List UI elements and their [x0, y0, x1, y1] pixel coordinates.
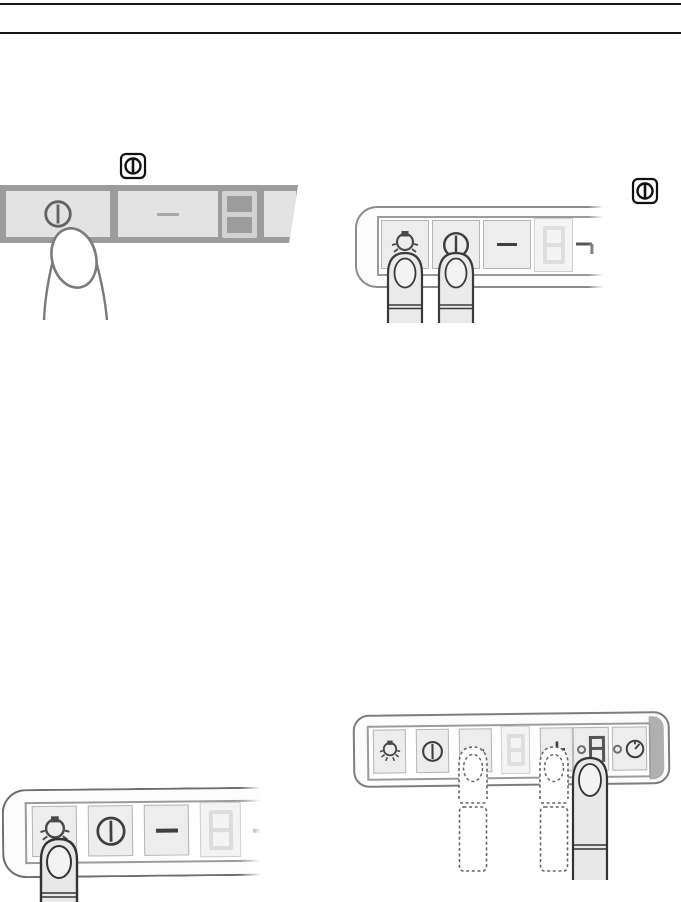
minus-icon [155, 828, 177, 832]
timer-led [613, 744, 622, 753]
crop-fade [588, 204, 610, 288]
crop-fade [240, 784, 270, 876]
manual-page [0, 0, 681, 902]
power-symbol-icon [631, 177, 659, 205]
minus-icon [497, 243, 517, 247]
display [200, 802, 242, 857]
display-digit-8 [506, 734, 524, 766]
dash-icon [157, 213, 179, 216]
finger-on-auto-key [568, 752, 612, 882]
power-symbol-icon [119, 152, 147, 180]
finger-on-light-key [383, 248, 427, 323]
header-rule [0, 32, 681, 34]
power-key [88, 805, 134, 856]
finger-outline [30, 222, 122, 322]
minus-key [483, 220, 531, 269]
finger-on-power-key [434, 248, 478, 323]
minus-key [144, 804, 190, 855]
display-digit-8 [222, 191, 257, 238]
light-key [373, 729, 407, 773]
timer-key [612, 726, 648, 770]
finger-dashed-minus [453, 741, 493, 875]
power-icon [419, 737, 446, 764]
power-icon [91, 812, 129, 850]
level-key [118, 191, 218, 237]
display [501, 726, 531, 774]
top-rule [0, 3, 681, 5]
clock-icon [624, 737, 646, 760]
power-key [416, 729, 450, 773]
display [534, 218, 573, 272]
light-icon [375, 737, 403, 765]
display-digit-8 [543, 226, 565, 264]
partial-key [264, 191, 296, 237]
finger-on-light-key [36, 835, 82, 902]
display-digit-8 [208, 809, 232, 849]
hood-body [353, 711, 671, 788]
